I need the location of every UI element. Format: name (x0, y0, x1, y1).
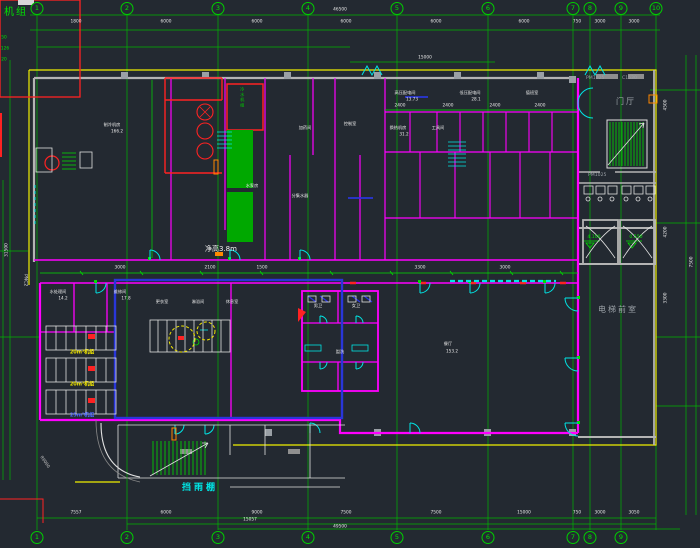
grid-lines (0, 13, 700, 530)
pipe-code-label: PNC2 (22, 274, 27, 286)
cyan-doors (35, 66, 605, 436)
cad-floorplan-view[interactable]: 机组 净高3.8m PM1025 C1530 PM1025 门厅 电梯前室 挡雨… (0, 0, 700, 548)
clear-height-note: 净高3.8m (205, 246, 237, 253)
floorplan-drawing (0, 0, 700, 548)
rain-canopy-label: 挡雨棚 (182, 484, 218, 493)
door-code-label: PM1025 (586, 77, 604, 82)
entrance-hall-label: 门厅 (616, 98, 636, 106)
unit-box-label: 机组 (4, 8, 28, 18)
white-fixtures (18, 0, 655, 487)
blue-elements (115, 97, 428, 418)
equipment-vert-label: 冷水机组 (240, 87, 244, 108)
window-code-label: C1530 (622, 77, 637, 82)
columns (121, 72, 576, 436)
elevator-lobby-label: 电梯前室 (598, 306, 638, 314)
door-code-label-2: PM1025 (588, 174, 606, 179)
